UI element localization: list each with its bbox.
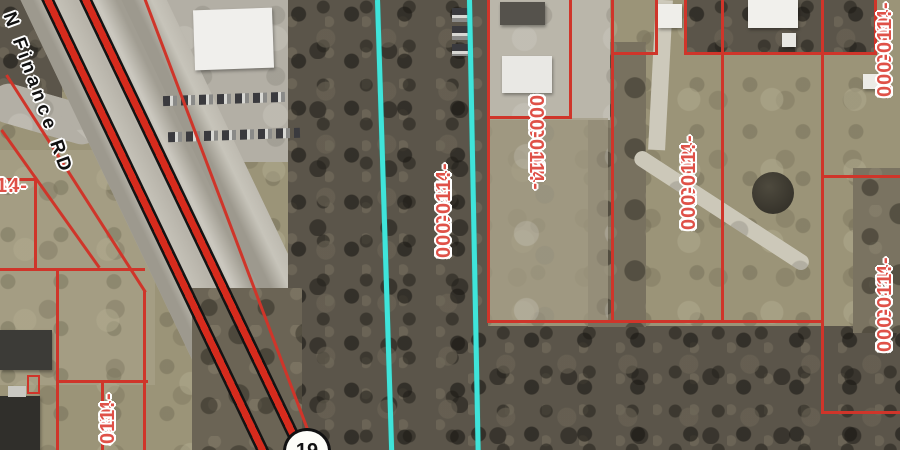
parcel-boundary-box xyxy=(27,375,40,394)
building-store xyxy=(193,8,274,71)
parcel-boundary-line xyxy=(655,0,658,54)
tree-blob xyxy=(752,172,794,214)
parcel-label-line: 000-011 xyxy=(522,95,549,174)
building-topright xyxy=(748,0,798,28)
trees-bottom xyxy=(468,326,900,450)
parcel-boundary-line xyxy=(821,411,900,414)
parcel-boundary-line xyxy=(611,0,614,322)
parcel-boundary-line xyxy=(721,0,724,320)
parcel-boundary-line xyxy=(56,268,59,450)
building-gas-canopy xyxy=(502,56,552,93)
parcel-boundary-line xyxy=(143,290,146,450)
parked-cars-col xyxy=(452,8,468,56)
parcel-label-line: 1 xyxy=(0,165,8,207)
building-sw-1 xyxy=(0,330,52,370)
parcel-label-line: 000-011 xyxy=(676,151,703,230)
route-number: 19 xyxy=(296,440,318,450)
building-sw-2 xyxy=(0,396,40,450)
parcel-boundary-line xyxy=(569,0,572,118)
building-gas-dark xyxy=(500,2,545,25)
shed-1 xyxy=(782,33,796,47)
parcel-boundary-line xyxy=(821,175,900,178)
building-white-small xyxy=(658,4,682,28)
parcel-boundary-line xyxy=(684,0,687,54)
dirt-patch xyxy=(490,118,608,323)
parcel-label-line: 000-011 xyxy=(872,273,899,352)
parcel-boundary-line xyxy=(487,0,490,322)
aerial-parcel-map[interactable]: 53-04-24- 101-031. 000-011 53-04-24- 102… xyxy=(0,0,900,450)
parcel-boundary-line xyxy=(684,52,877,55)
parcel-label-line: 000-011 xyxy=(431,179,458,258)
parcel-boundary-line xyxy=(34,178,37,270)
parcel-boundary-line xyxy=(487,320,824,323)
parcel-boundary-line xyxy=(0,268,145,271)
parcel-label-line: 011 xyxy=(95,409,122,444)
building-sw-roof xyxy=(8,386,26,397)
parcel-boundary-line xyxy=(611,52,658,55)
parcel-boundary-line xyxy=(821,0,824,413)
parcel-label-line: 000-011 xyxy=(872,18,899,97)
